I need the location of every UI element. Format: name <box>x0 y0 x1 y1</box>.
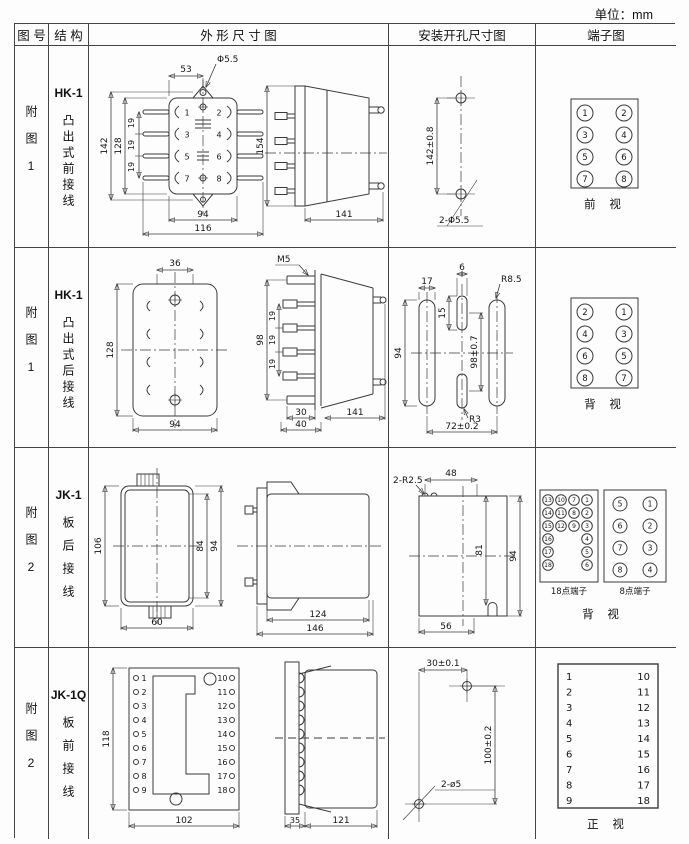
terminal-number: 6 <box>621 153 626 163</box>
front-view: 1 2 3 4 5 6 <box>100 55 263 236</box>
terminal-number: 4 <box>582 330 587 340</box>
dim-102: 102 <box>175 816 192 826</box>
terminal-number: 3 <box>621 330 626 340</box>
dim-94: 94 <box>197 210 209 220</box>
mounting-drawing-svg: 17 6 15 94 98±0.7 R8.5 R3 72±0.2 <box>389 248 535 447</box>
dim-19: 19 <box>268 359 277 369</box>
terminal-number: 6 <box>566 750 572 761</box>
terminal-number: 3 <box>585 523 589 530</box>
terminal-number: 7 <box>621 374 626 384</box>
outline-drawing-hk1-rear: 36 128 94 M5 <box>89 248 389 448</box>
figure-no-row3: 附图2 <box>15 448 49 648</box>
header-mounting: 安装开孔尺寸图 <box>389 24 536 46</box>
mounting-drawing-hk1-rear: 17 6 15 94 98±0.7 R8.5 R3 72±0.2 <box>389 248 536 448</box>
model-label: JK-1Q <box>51 688 86 702</box>
dimension-table: 图 号 结 构 外 形 尺 寸 图 安装开孔尺寸图 端子图 附图1 HK-1 凸… <box>14 23 675 838</box>
pin-number: 10 <box>217 674 227 683</box>
mounting-drawing-jk1: 2-R2.5 48 81 94 56 <box>389 448 536 648</box>
header-outline: 外 形 尺 寸 图 <box>89 24 389 46</box>
dim-154: 154 <box>256 137 266 154</box>
terminal-number: 7 <box>572 497 576 504</box>
front-view: 106 60 84 94 <box>94 468 223 630</box>
terminal-number: 4 <box>585 536 589 543</box>
dim-36: 36 <box>169 259 181 269</box>
structure-desc: 凸出式后接线 <box>60 316 77 412</box>
terminal-diagram-svg: 1 2 3 4 5 6 7 8 前 视 <box>536 46 675 247</box>
structure-desc: 板前接线 <box>60 716 77 808</box>
dim-r8-5: R8.5 <box>501 275 522 285</box>
pin-number: 3 <box>142 702 147 711</box>
terminal-number: 12 <box>637 703 650 714</box>
mounting-drawing-hk1-front: 142±0.8 2-Φ5.5 <box>389 46 536 248</box>
dim-60: 60 <box>151 618 163 628</box>
terminal-number: 3 <box>648 544 653 553</box>
terminal-circles: 2 1 4 3 6 5 8 7 <box>577 304 632 386</box>
terminal-number: 2 <box>621 109 626 119</box>
unit-label: 单位：mm <box>595 4 653 23</box>
dim-124: 124 <box>309 610 326 620</box>
mounting-drawing-svg: 2-R2.5 48 81 94 56 <box>389 448 535 647</box>
terminal-number: 8 <box>618 566 623 575</box>
dim-128: 128 <box>106 341 116 358</box>
model-label: HK-1 <box>54 288 82 302</box>
terminal-diagram-jk1: 13 14 15 16 17 18 10 11 12 7 8 9 1 2 3 4 <box>536 448 676 648</box>
dim-19: 19 <box>268 311 277 321</box>
terminal-number: 14 <box>637 734 650 745</box>
dim-121: 121 <box>332 816 349 826</box>
dim-94: 94 <box>394 347 404 359</box>
header-figure: 图 号 <box>15 24 49 46</box>
dim-19: 19 <box>127 118 136 128</box>
view-label: 正 视 <box>587 817 629 831</box>
front-pins-right: 10 11 12 13 14 15 16 17 18 <box>217 674 234 795</box>
terminal-number: 14 <box>544 510 552 517</box>
terminal-number: 13 <box>637 719 650 730</box>
terminal-number: 8 <box>572 510 576 517</box>
outline-drawing-jk1q: 1 2 3 4 5 6 7 8 9 10 11 12 13 <box>89 648 389 839</box>
pin-number: 8 <box>142 772 147 781</box>
terminal-number: 3 <box>566 703 572 714</box>
view-label: 背 视 <box>584 397 626 411</box>
terminal-diagram-hk1-front: 1 2 3 4 5 6 7 8 前 视 <box>536 46 676 248</box>
dim-94: 94 <box>169 420 181 430</box>
dim-141: 141 <box>335 210 352 220</box>
dim-19: 19 <box>127 162 136 172</box>
terminal-number: 6 <box>618 522 623 531</box>
dim-146: 146 <box>306 624 323 634</box>
terminal-block-18-label: 18点端子 <box>551 586 588 597</box>
dim-118: 118 <box>102 730 112 747</box>
terminal-number: 2 <box>585 510 589 517</box>
side-view: M5 98 <box>256 255 386 432</box>
terminal-number: 18 <box>637 796 650 807</box>
terminal-number: 7 <box>582 175 587 185</box>
pin-number: 7 <box>142 758 147 767</box>
terminal-number: 9 <box>572 523 576 530</box>
terminal-number: 1 <box>566 672 572 683</box>
structure-row1: HK-1 凸出式前接线 <box>49 46 89 248</box>
pin-number: 12 <box>217 702 227 711</box>
pin-number: 6 <box>216 153 221 162</box>
structure-desc: 凸出式前接线 <box>60 114 77 210</box>
dim-17: 17 <box>421 277 432 287</box>
terminal-number: 1 <box>621 308 626 318</box>
rear-terminals <box>283 300 315 380</box>
terminal-number: 17 <box>544 549 552 556</box>
terminal-number: 10 <box>637 672 650 683</box>
pin-number: 4 <box>142 716 147 725</box>
terminal-number: 5 <box>582 153 587 163</box>
terminal-number: 3 <box>582 131 587 141</box>
pin-number: 3 <box>184 131 189 140</box>
side-bumps <box>299 673 304 795</box>
pin-number: 2 <box>142 688 147 697</box>
rear-view: 36 128 94 <box>106 259 229 432</box>
terminal-number: 1 <box>585 497 589 504</box>
dim-30-tol: 30±0.1 <box>426 659 459 669</box>
terminal-number: 11 <box>557 510 565 517</box>
side-view: 124 146 <box>237 482 381 636</box>
terminal-number: 12 <box>557 523 565 530</box>
dim-142: 142 <box>100 137 110 154</box>
outline-drawing-hk1-front: 1 2 3 4 5 6 <box>89 46 389 248</box>
front-pins-left: 1 2 3 4 5 6 7 8 9 <box>134 674 147 795</box>
view-label: 前 视 <box>584 197 626 211</box>
dim-100-tol: 100±0.2 <box>484 725 494 764</box>
figure-no-row1: 附图1 <box>15 46 49 248</box>
terminal-number: 11 <box>637 688 650 699</box>
dim-19: 19 <box>268 335 277 345</box>
dim-128: 128 <box>114 137 124 154</box>
outline-drawing-svg: 106 60 84 94 124 <box>89 448 388 647</box>
terminal-diagram-svg: 13 14 15 16 17 18 10 11 12 7 8 9 1 2 3 4 <box>536 448 675 647</box>
terminal-number: 18 <box>544 562 552 569</box>
dim-56: 56 <box>440 622 452 632</box>
terminal-number: 13 <box>544 497 552 504</box>
pin-number: 11 <box>217 688 227 697</box>
terminal-diagram-svg: 110 211 312 413 514 615 716 817 918 正 视 <box>536 648 675 838</box>
terminal-number: 6 <box>582 352 587 362</box>
terminal-numbers: 110 211 312 413 514 615 716 817 918 <box>566 672 650 807</box>
dim-48: 48 <box>445 469 457 479</box>
model-label: JK-1 <box>55 488 81 502</box>
dim-116: 116 <box>194 224 211 234</box>
hole-spec: 2-ø5 <box>441 780 461 790</box>
hole-spec: 2-Φ5.5 <box>439 216 469 226</box>
terminal-number: 16 <box>544 536 552 543</box>
dim-98: 98 <box>256 334 266 346</box>
terminal-number: 2 <box>582 308 587 318</box>
outline-drawing-svg: 1 2 3 4 5 6 <box>89 46 388 247</box>
pin-number: 4 <box>216 131 221 140</box>
header-structure: 结 构 <box>49 24 89 46</box>
pin-number: 2 <box>216 109 221 118</box>
pin-number: 15 <box>217 744 227 753</box>
pin-number: 13 <box>217 716 227 725</box>
pin-number: 7 <box>184 175 189 184</box>
pin-number: 16 <box>217 758 227 767</box>
pin-number: 6 <box>142 744 147 753</box>
dim-98-tol: 98±0.7 <box>470 335 480 368</box>
terminal-number: 10 <box>557 497 565 504</box>
mounting-drawing-svg: 142±0.8 2-Φ5.5 <box>389 46 535 247</box>
outline-drawing-svg: 36 128 94 M5 <box>89 248 388 447</box>
terminal-number: 5 <box>618 500 623 509</box>
dim-141: 141 <box>346 408 363 418</box>
view-label: 背 视 <box>582 607 624 621</box>
dim-m5: M5 <box>277 255 291 265</box>
datasheet-page: 单位：mm 图 号 结 构 外 形 尺 寸 图 安装开孔尺寸图 端子图 附图1 … <box>0 0 689 844</box>
structure-desc: 板后接线 <box>60 516 77 608</box>
pin-number: 1 <box>142 674 147 683</box>
dim-142-tol: 142±0.8 <box>426 126 436 165</box>
dim-phi5-5: Φ5.5 <box>217 55 238 65</box>
terminal-number: 16 <box>637 765 650 776</box>
terminal-diagram-jk1q: 110 211 312 413 514 615 716 817 918 正 视 <box>536 648 676 839</box>
pin-number: 17 <box>217 772 227 781</box>
dim-40: 40 <box>295 420 307 430</box>
dim-2r2-5: 2-R2.5 <box>393 476 423 486</box>
terminal-number: 6 <box>585 562 589 569</box>
terminal-circles: 1 2 3 4 5 6 7 8 <box>577 105 632 187</box>
terminal-number: 7 <box>566 765 572 776</box>
terminal-number: 17 <box>637 781 650 792</box>
dim-84: 84 <box>196 540 206 552</box>
dim-94: 94 <box>210 540 220 552</box>
terminal-number: 8 <box>566 781 572 792</box>
dim-6: 6 <box>459 263 465 273</box>
dim-15: 15 <box>438 307 448 318</box>
header-terminal: 端子图 <box>536 24 676 46</box>
pin-number: 5 <box>184 153 189 162</box>
dim-53: 53 <box>180 65 191 75</box>
figure-no-row4: 附图2 <box>15 648 49 839</box>
terminal-number: 2 <box>648 522 653 531</box>
terminal-number: 5 <box>621 352 626 362</box>
pin-number: 1 <box>184 109 189 118</box>
pin-number: 5 <box>142 730 147 739</box>
terminal-block-8: 5 6 7 8 1 2 3 4 <box>604 490 666 582</box>
pin-number: 9 <box>142 786 147 795</box>
terminal-diagram-svg: 2 1 4 3 6 5 8 7 背 视 <box>536 248 675 447</box>
dim-72-tol: 72±0.2 <box>445 422 478 432</box>
dim-81: 81 <box>475 544 485 555</box>
terminal-number: 4 <box>648 566 653 575</box>
model-label: HK-1 <box>54 86 82 100</box>
terminal-block-18: 13 14 15 16 17 18 10 11 12 7 8 9 1 2 3 4 <box>540 490 598 582</box>
outline-drawing-svg: 1 2 3 4 5 6 7 8 9 10 11 12 13 <box>89 648 388 838</box>
terminal-number: 8 <box>621 175 626 185</box>
dim-30: 30 <box>295 408 307 418</box>
terminal-number: 7 <box>618 544 623 553</box>
dim-35: 35 <box>290 816 300 825</box>
terminal-number: 5 <box>585 549 589 556</box>
structure-row3: JK-1 板后接线 <box>49 448 89 648</box>
side-view: 154 141 <box>256 86 387 222</box>
figure-no-row2: 附图1 <box>15 248 49 448</box>
mounting-drawing-jk1q: 30±0.1 100±0.2 2-ø5 <box>389 648 536 839</box>
terminal-number: 1 <box>648 500 653 509</box>
dim-19: 19 <box>127 140 136 150</box>
pin-number: 18 <box>217 786 227 795</box>
outline-drawing-jk1: 106 60 84 94 124 <box>89 448 389 648</box>
structure-row4: JK-1Q 板前接线 <box>49 648 89 839</box>
terminal-number: 8 <box>582 374 587 384</box>
structure-row2: HK-1 凸出式后接线 <box>49 248 89 448</box>
dim-94: 94 <box>509 550 519 562</box>
mounting-drawing-svg: 30±0.1 100±0.2 2-ø5 <box>389 648 535 838</box>
side-pins <box>275 113 295 195</box>
pin-number: 8 <box>216 175 221 184</box>
terminal-number: 2 <box>566 688 572 699</box>
terminal-number: 1 <box>582 109 587 119</box>
terminal-diagram-hk1-rear: 2 1 4 3 6 5 8 7 背 视 <box>536 248 676 448</box>
terminal-number: 4 <box>566 719 572 730</box>
terminal-number: 5 <box>566 734 572 745</box>
terminal-number: 9 <box>566 796 572 807</box>
side-view: 35 121 <box>275 662 385 828</box>
terminal-number: 15 <box>544 523 552 530</box>
terminal-number: 4 <box>621 131 626 141</box>
dim-106: 106 <box>94 537 104 554</box>
terminal-number: 15 <box>637 750 650 761</box>
front-view: 1 2 3 4 5 6 7 8 9 10 11 12 13 <box>102 668 239 828</box>
pin-number: 14 <box>217 730 227 739</box>
terminal-block-8-label: 8点端子 <box>620 586 651 597</box>
